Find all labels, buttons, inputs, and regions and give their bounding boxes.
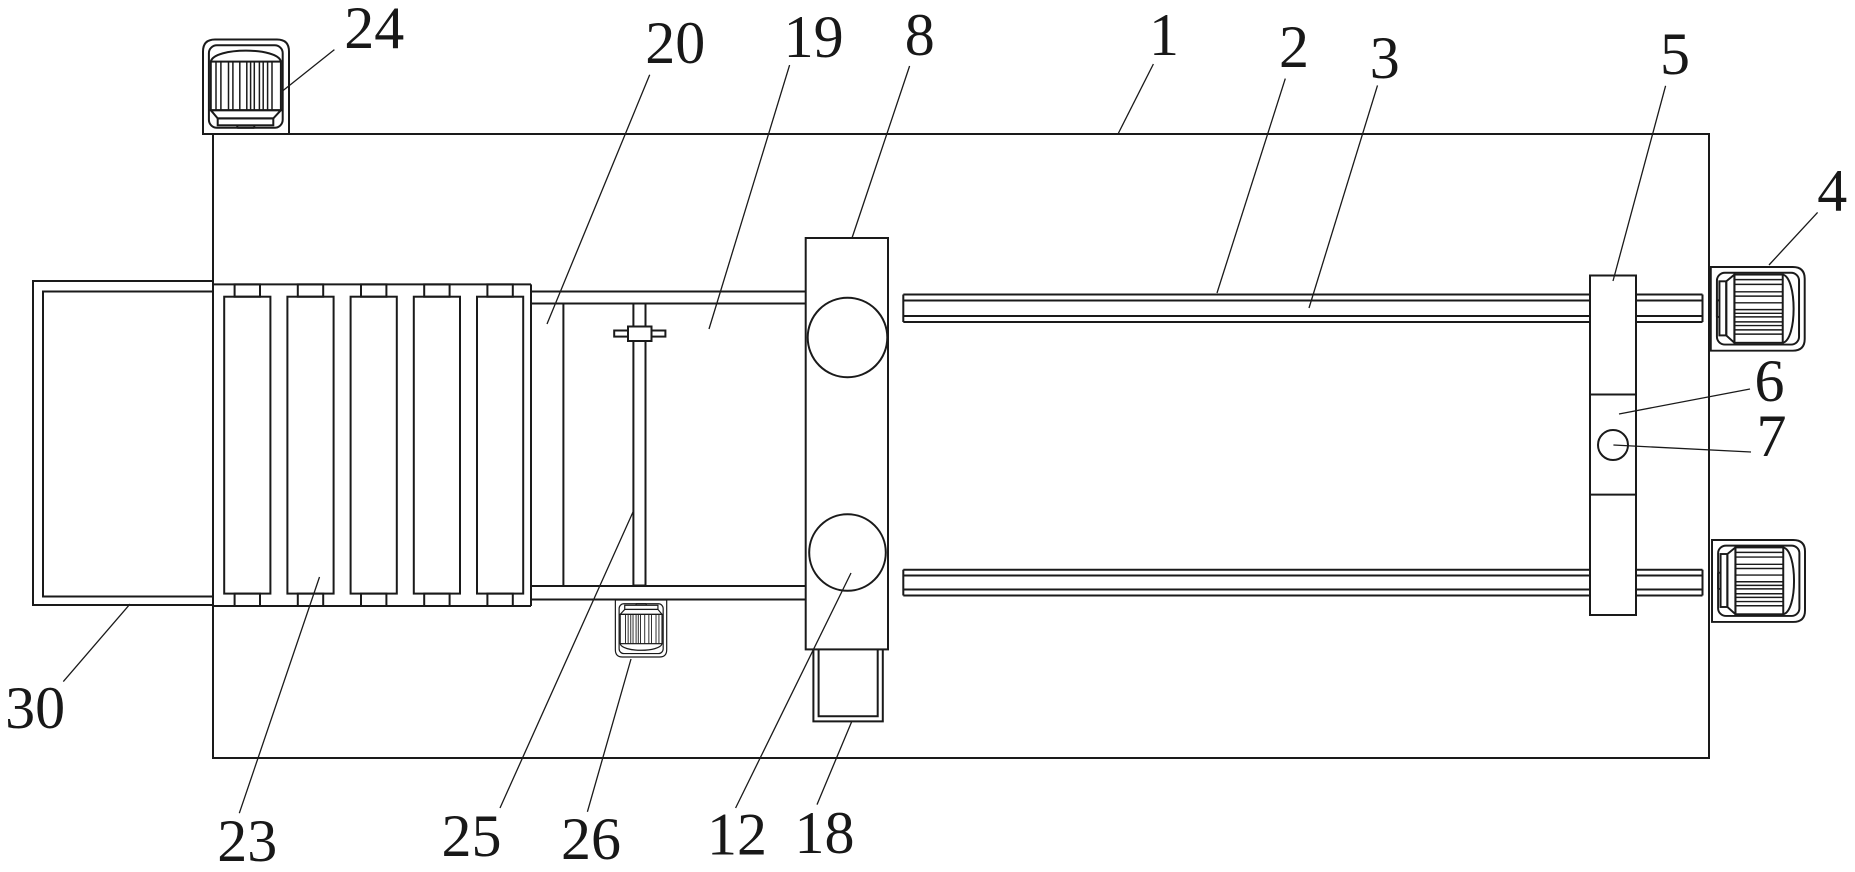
svg-text:30: 30 xyxy=(5,675,65,741)
svg-text:5: 5 xyxy=(1660,21,1690,87)
svg-text:1: 1 xyxy=(1149,2,1179,68)
svg-text:19: 19 xyxy=(784,4,844,70)
svg-text:12: 12 xyxy=(707,802,767,868)
svg-text:8: 8 xyxy=(905,2,935,68)
svg-text:18: 18 xyxy=(795,800,855,866)
svg-text:26: 26 xyxy=(561,806,621,872)
svg-text:4: 4 xyxy=(1817,158,1847,224)
svg-text:3: 3 xyxy=(1370,25,1400,91)
svg-text:25: 25 xyxy=(442,803,502,869)
svg-text:24: 24 xyxy=(344,0,404,61)
svg-text:23: 23 xyxy=(217,808,277,872)
svg-text:2: 2 xyxy=(1279,14,1309,80)
svg-text:20: 20 xyxy=(645,10,705,76)
svg-text:7: 7 xyxy=(1757,403,1787,469)
